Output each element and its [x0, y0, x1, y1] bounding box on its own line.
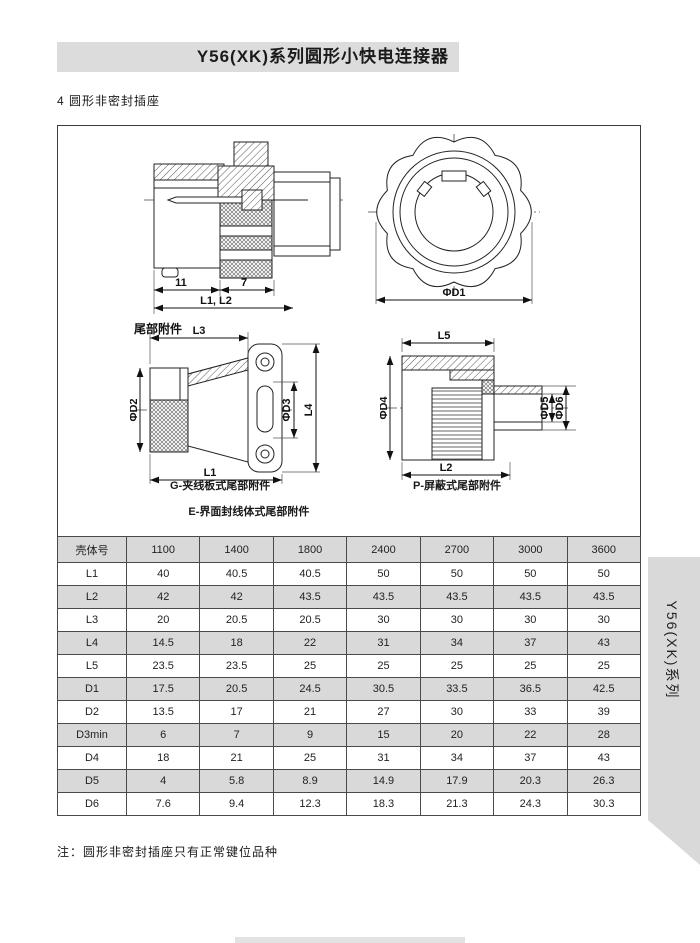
row-label: D4 — [58, 747, 127, 770]
table-cell: 40 — [127, 563, 200, 586]
table-cell: 20.5 — [200, 609, 273, 632]
dim-l5: L5 — [438, 330, 451, 342]
row-label: D6 — [58, 793, 127, 816]
figure-front-view: ΦD1 — [366, 132, 544, 316]
table-cell: 40.5 — [273, 563, 346, 586]
table-cell: 43 — [567, 632, 640, 655]
table-cell: 30 — [420, 609, 493, 632]
table-cell: 21.3 — [420, 793, 493, 816]
table-row-L1: L14040.540.550505050 — [58, 563, 641, 586]
dim-l1: L1 — [204, 467, 217, 479]
table-header-cell: 1100 — [127, 537, 200, 563]
table-cell: 43 — [567, 747, 640, 770]
table-cell: 30 — [494, 609, 567, 632]
table-row-D3min: D3min67915202228 — [58, 724, 641, 747]
table-cell: 4 — [127, 770, 200, 793]
row-label: L3 — [58, 609, 127, 632]
table-cell: 42 — [127, 586, 200, 609]
table-cell: 17.5 — [127, 678, 200, 701]
table-cell: 39 — [567, 701, 640, 724]
dim-l1-l2: L1, L2 — [200, 295, 232, 307]
table-cell: 20 — [420, 724, 493, 747]
table-cell: 43.5 — [273, 586, 346, 609]
table-cell: 33.5 — [420, 678, 493, 701]
table-row-D5: D545.88.914.917.920.326.3 — [58, 770, 641, 793]
table-header-cell: 2700 — [420, 537, 493, 563]
caption-e-line: E-界面封线体式尾部附件 — [188, 506, 309, 518]
table-cell: 34 — [420, 632, 493, 655]
row-label: L2 — [58, 586, 127, 609]
table-header-cell: 2400 — [347, 537, 420, 563]
figure-tail-accessory-ge: 尾部附件 L3 ΦD2 — [130, 322, 334, 490]
table-cell: 37 — [494, 632, 567, 655]
key-top — [442, 171, 466, 181]
table-cell: 27 — [347, 701, 420, 724]
table-cell: 33 — [494, 701, 567, 724]
dim-d2: ΦD2 — [130, 398, 140, 421]
table-cell: 50 — [347, 563, 420, 586]
series-side-tab-label: Y56(XK)系列 — [666, 575, 682, 725]
table-cell: 5.8 — [200, 770, 273, 793]
dim-l3: L3 — [193, 325, 206, 337]
caption-tail-ge: G-夹线板式尾部附件 E-界面封线体式尾部附件 — [170, 480, 309, 519]
table-cell: 43.5 — [494, 586, 567, 609]
table-row-D2: D213.5172127303339 — [58, 701, 641, 724]
table-cell: 14.9 — [347, 770, 420, 793]
table-row-L5: L523.523.52525252525 — [58, 655, 641, 678]
table-header-shell-size: 壳体号 — [58, 537, 127, 563]
table-row-D6: D67.69.412.318.321.324.330.3 — [58, 793, 641, 816]
table-cell: 22 — [273, 632, 346, 655]
dim-d4: ΦD4 — [380, 396, 390, 420]
table-cell: 12.3 — [273, 793, 346, 816]
dim-11: 11 — [175, 277, 187, 289]
table-cell: 20.5 — [200, 678, 273, 701]
caption-g-line: G-夹线板式尾部附件 — [170, 480, 270, 492]
table-cell: 24.3 — [494, 793, 567, 816]
table-cell: 17.9 — [420, 770, 493, 793]
dimension-table: 壳体号1100140018002400270030003600L14040.54… — [57, 536, 641, 816]
table-cell: 30.3 — [567, 793, 640, 816]
table-cell: 50 — [567, 563, 640, 586]
table-cell: 42 — [200, 586, 273, 609]
table-cell: 24.5 — [273, 678, 346, 701]
table-header-cell: 1800 — [273, 537, 346, 563]
dim-l2: L2 — [440, 462, 453, 474]
table-cell: 25 — [567, 655, 640, 678]
row-label: D3min — [58, 724, 127, 747]
table-cell: 21 — [273, 701, 346, 724]
table-row-L4: L414.5182231343743 — [58, 632, 641, 655]
row-label: D2 — [58, 701, 127, 724]
row-label: L1 — [58, 563, 127, 586]
dim-d6: ΦD6 — [554, 396, 566, 419]
row-label: L5 — [58, 655, 127, 678]
table-cell: 25 — [273, 655, 346, 678]
table-cell: 21 — [200, 747, 273, 770]
table-cell: 7 — [200, 724, 273, 747]
table-cell: 7.6 — [127, 793, 200, 816]
row-label: D1 — [58, 678, 127, 701]
table-row-L2: L2424243.543.543.543.543.5 — [58, 586, 641, 609]
table-header-cell: 3000 — [494, 537, 567, 563]
table-cell: 25 — [420, 655, 493, 678]
caption-tail-p: P-屏蔽式尾部附件 — [413, 480, 501, 493]
table-cell: 30 — [420, 701, 493, 724]
caption-p-line: P-屏蔽式尾部附件 — [413, 480, 501, 492]
table-cell: 23.5 — [200, 655, 273, 678]
table-cell: 30 — [567, 609, 640, 632]
page-title: Y56(XK)系列圆形小快电连接器 — [57, 42, 459, 72]
table-cell: 43.5 — [347, 586, 420, 609]
table-cell: 50 — [420, 563, 493, 586]
table-cell: 23.5 — [127, 655, 200, 678]
table-cell: 28 — [567, 724, 640, 747]
page-banner: Y56(XK)系列圆形小快电连接器 — [57, 42, 459, 72]
dimension-table-body: 壳体号1100140018002400270030003600L14040.54… — [58, 537, 641, 816]
table-cell: 26.3 — [567, 770, 640, 793]
datasheet-page: Y56(XK)系列圆形小快电连接器 4 圆形非密封插座 — [0, 0, 700, 943]
table-cell: 25 — [273, 747, 346, 770]
table-header-row: 壳体号1100140018002400270030003600 — [58, 537, 641, 563]
figure-plug-cross-section: 11 7 L1, L2 — [138, 138, 358, 320]
table-cell: 42.5 — [567, 678, 640, 701]
table-cell: 22 — [494, 724, 567, 747]
footnote: 注：圆形非密封插座只有正常键位品种 — [57, 843, 278, 860]
table-cell: 14.5 — [127, 632, 200, 655]
table-row-D1: D117.520.524.530.533.536.542.5 — [58, 678, 641, 701]
table-cell: 13.5 — [127, 701, 200, 724]
table-row-D4: D418212531343743 — [58, 747, 641, 770]
table-cell: 36.5 — [494, 678, 567, 701]
table-cell: 20.5 — [273, 609, 346, 632]
footer-bar — [235, 937, 465, 943]
table-header-cell: 3600 — [567, 537, 640, 563]
table-cell: 15 — [347, 724, 420, 747]
table-cell: 9 — [273, 724, 346, 747]
table-cell: 31 — [347, 632, 420, 655]
dim-d5: ΦD5 — [539, 396, 551, 419]
table-header-cell: 1400 — [200, 537, 273, 563]
table-cell: 25 — [494, 655, 567, 678]
table-cell: 40.5 — [200, 563, 273, 586]
table-cell: 50 — [494, 563, 567, 586]
dim-d1: ΦD1 — [442, 287, 465, 299]
table-cell: 17 — [200, 701, 273, 724]
table-cell: 30 — [347, 609, 420, 632]
table-cell: 18 — [200, 632, 273, 655]
table-row-L3: L32020.520.530303030 — [58, 609, 641, 632]
section-heading: 4 圆形非密封插座 — [57, 92, 160, 109]
table-cell: 20.3 — [494, 770, 567, 793]
row-label: D5 — [58, 770, 127, 793]
dim-l4: L4 — [303, 403, 315, 417]
table-cell: 43.5 — [567, 586, 640, 609]
table-cell: 31 — [347, 747, 420, 770]
table-cell: 18 — [127, 747, 200, 770]
table-cell: 34 — [420, 747, 493, 770]
series-side-tab: Y56(XK)系列 — [648, 557, 700, 865]
row-label: L4 — [58, 632, 127, 655]
table-cell: 43.5 — [420, 586, 493, 609]
table-cell: 25 — [347, 655, 420, 678]
tail-accessory-label: 尾部附件 — [134, 322, 182, 336]
table-cell: 6 — [127, 724, 200, 747]
figure-tail-accessory-p: L5 ΦD4 ΦD5 ΦD6 L2 — [380, 330, 578, 488]
table-cell: 18.3 — [347, 793, 420, 816]
content-box: 11 7 L1, L2 ΦD1 尾部附件 — [57, 125, 641, 816]
table-cell: 30.5 — [347, 678, 420, 701]
table-cell: 37 — [494, 747, 567, 770]
table-cell: 9.4 — [200, 793, 273, 816]
table-cell: 20 — [127, 609, 200, 632]
dim-d3: ΦD3 — [281, 398, 293, 421]
table-cell: 8.9 — [273, 770, 346, 793]
dim-7: 7 — [241, 277, 247, 289]
